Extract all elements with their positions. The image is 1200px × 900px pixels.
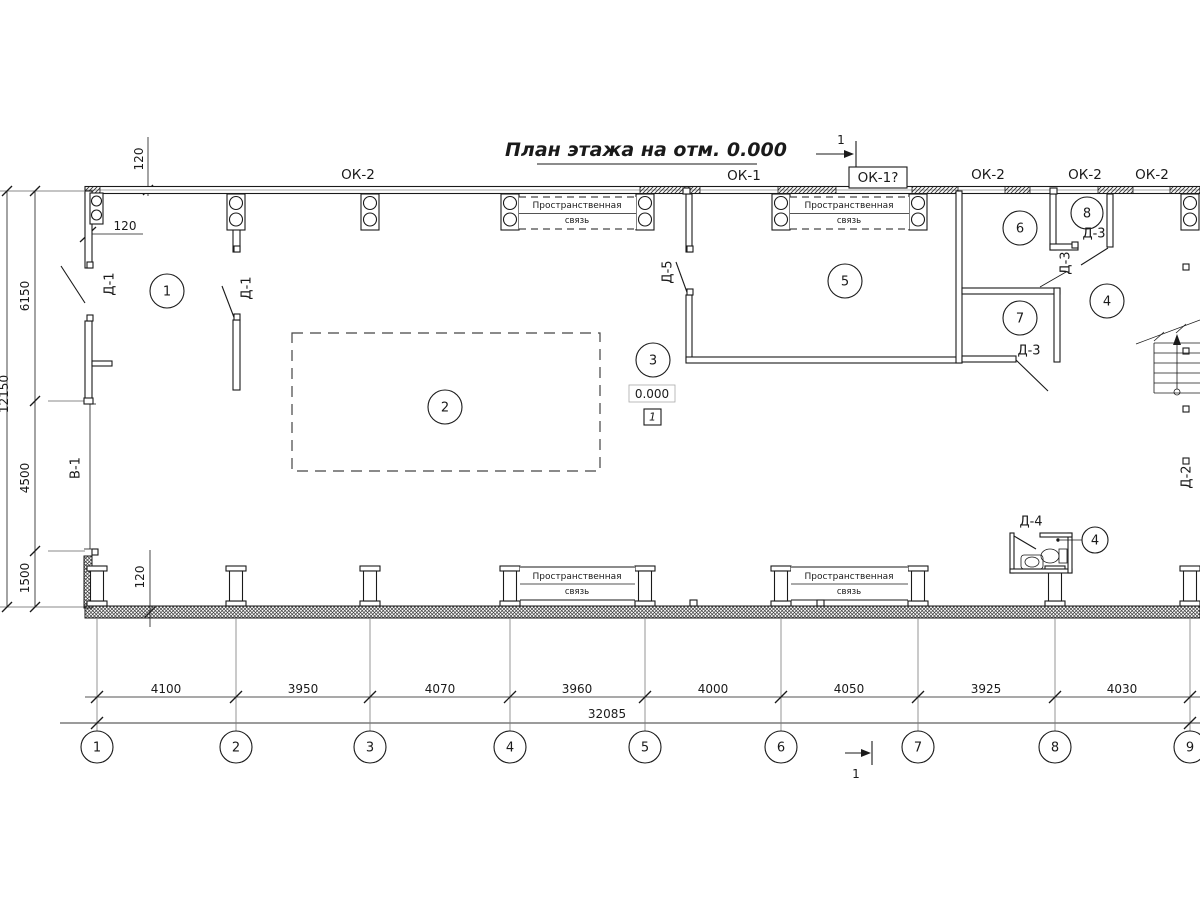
door-label: Д-4 bbox=[1019, 515, 1042, 530]
door-leaf bbox=[222, 286, 235, 320]
door-label: Д-2 bbox=[1180, 465, 1195, 488]
dim-1500: 1500 bbox=[18, 563, 32, 594]
svg-text:3: 3 bbox=[366, 741, 374, 756]
wall-pier bbox=[1005, 187, 1030, 194]
svg-text:3: 3 bbox=[649, 354, 657, 369]
left-wall bbox=[84, 191, 112, 608]
brace-label: Пространственная bbox=[804, 201, 893, 211]
column bbox=[227, 194, 245, 230]
column bbox=[909, 194, 927, 230]
door-jamb bbox=[1050, 188, 1057, 194]
sink-bowl-icon bbox=[1025, 557, 1039, 567]
column bbox=[87, 566, 107, 606]
drawing-title: План этажа на отм. 0.000 bbox=[505, 139, 787, 164]
wall-return bbox=[92, 361, 112, 366]
section-arrow-icon bbox=[844, 150, 854, 158]
door-label: Д-1 bbox=[240, 276, 255, 299]
top-wall bbox=[85, 187, 1200, 194]
door-jamb bbox=[687, 246, 693, 252]
section-mark-bottom: 1 bbox=[845, 741, 872, 781]
svg-text:4: 4 bbox=[1091, 534, 1099, 549]
svg-text:8: 8 bbox=[1051, 741, 1059, 756]
dim-6150: 6150 bbox=[18, 281, 32, 312]
dim-12150: 12150 bbox=[0, 375, 11, 413]
floor-plan-canvas: План этажа на отм. 0.000 1 1 6150 4500 1… bbox=[0, 0, 1200, 900]
door-label: Д-3 bbox=[1082, 227, 1105, 242]
axis-bubbles: 1 2 3 4 5 6 7 8 9 bbox=[81, 731, 1200, 763]
svg-text:7: 7 bbox=[1016, 312, 1024, 327]
dim-span: 4030 bbox=[1107, 682, 1138, 696]
door-label: Д-1 bbox=[103, 272, 118, 295]
wall-pier bbox=[1170, 187, 1200, 194]
brace-top-2: Пространственная связь bbox=[790, 197, 909, 229]
door-leaf bbox=[61, 266, 85, 303]
door-label: Д-3 bbox=[1017, 344, 1040, 359]
door-leaf bbox=[676, 262, 688, 295]
brace-label: связь bbox=[837, 587, 861, 597]
door-jamb bbox=[817, 600, 824, 606]
dim-total: 32085 bbox=[588, 707, 626, 721]
dim-120-bottom: 120 bbox=[133, 566, 147, 589]
dim-span: 4050 bbox=[834, 682, 865, 696]
dim-span: 3960 bbox=[562, 682, 593, 696]
window-label: ОК-2 bbox=[1135, 167, 1169, 183]
page-title: План этажа на отм. 0.000 bbox=[505, 139, 787, 161]
window-label: ОК-1 bbox=[727, 168, 761, 184]
dim-120-top: 120 bbox=[132, 148, 146, 171]
svg-text:5: 5 bbox=[841, 275, 849, 290]
room-bubbles: 1 2 3 5 6 7 8 4 4 bbox=[150, 197, 1124, 553]
svg-text:7: 7 bbox=[914, 741, 922, 756]
brace-label: связь bbox=[565, 216, 589, 226]
window-label: ОК-2 bbox=[1068, 167, 1102, 183]
svg-text:6: 6 bbox=[777, 741, 785, 756]
door-leaf bbox=[1014, 536, 1036, 549]
column bbox=[771, 566, 791, 606]
door-jamb bbox=[87, 315, 93, 321]
gate-label: В-1 bbox=[69, 457, 84, 479]
column bbox=[635, 566, 655, 606]
section-mark-top: 1 bbox=[816, 133, 856, 167]
section-arrow-icon bbox=[861, 749, 871, 757]
section-number: 1 bbox=[837, 133, 845, 147]
dim-4500: 4500 bbox=[18, 463, 32, 494]
column bbox=[90, 193, 103, 224]
svg-text:4: 4 bbox=[506, 741, 514, 756]
dim-span: 3925 bbox=[971, 682, 1002, 696]
door-jamb bbox=[1183, 458, 1189, 464]
wall-pier bbox=[912, 187, 958, 194]
door-label: Д-5 bbox=[661, 260, 676, 283]
brace-top-1: Пространственная связь bbox=[519, 197, 636, 229]
door-leaf bbox=[1081, 248, 1108, 265]
level-mark: 0.000 1 bbox=[629, 385, 675, 425]
door-jamb bbox=[234, 314, 240, 320]
brace-bottom-1: Пространственная связь bbox=[520, 566, 635, 600]
section-number: 1 bbox=[852, 767, 860, 781]
door-jamb bbox=[234, 246, 240, 252]
brace-label: Пространственная bbox=[804, 572, 893, 582]
window-label: ОК-2 bbox=[971, 167, 1005, 183]
level-flag: 1 bbox=[649, 411, 656, 424]
door-jamb bbox=[92, 549, 98, 555]
bottom-wall bbox=[85, 606, 1200, 618]
brace-label: связь bbox=[837, 216, 861, 226]
svg-text:2: 2 bbox=[441, 401, 449, 416]
dim-120-wall: 120 bbox=[114, 219, 137, 233]
stair-arrow-head-icon bbox=[1173, 334, 1181, 345]
column bbox=[1181, 194, 1199, 230]
column bbox=[772, 194, 790, 230]
dimensions-bottom: 4100 3950 4070 3960 4000 4050 3925 4030 … bbox=[60, 619, 1200, 733]
dimensions-left: 6150 4500 1500 12150 120 120 120 bbox=[0, 137, 155, 627]
door-label: Д-3 bbox=[1059, 251, 1074, 274]
floor-plan-sheet: План этажа на отм. 0.000 1 1 6150 4500 1… bbox=[0, 0, 1200, 900]
stair-break-line bbox=[1136, 320, 1200, 344]
dim-span: 3950 bbox=[288, 682, 319, 696]
door-jamb bbox=[683, 188, 690, 194]
level-value: 0.000 bbox=[635, 387, 669, 401]
column bbox=[360, 566, 380, 606]
column bbox=[501, 194, 519, 230]
dim-span: 4070 bbox=[425, 682, 456, 696]
dim-span: 4000 bbox=[698, 682, 729, 696]
window-label: ОК-2 bbox=[341, 167, 375, 183]
svg-text:2: 2 bbox=[232, 741, 240, 756]
door-jamb bbox=[687, 289, 693, 295]
stairs bbox=[1136, 320, 1200, 395]
svg-text:9: 9 bbox=[1186, 741, 1194, 756]
door-jamb bbox=[87, 262, 93, 268]
gate-b1: В-1 bbox=[69, 404, 97, 549]
door-leaf bbox=[1016, 360, 1048, 391]
stair-arrow-start bbox=[1174, 389, 1180, 395]
doors bbox=[61, 188, 1189, 606]
svg-text:1: 1 bbox=[93, 741, 101, 756]
column bbox=[1180, 566, 1200, 606]
svg-text:5: 5 bbox=[641, 741, 649, 756]
svg-text:4: 4 bbox=[1103, 295, 1111, 310]
wall-pier bbox=[778, 187, 836, 194]
brace-label: Пространственная bbox=[532, 201, 621, 211]
svg-text:6: 6 bbox=[1016, 222, 1024, 237]
column bbox=[361, 194, 379, 230]
toilet-icon bbox=[1041, 549, 1059, 563]
door-jamb bbox=[1183, 264, 1189, 270]
column bbox=[500, 566, 520, 606]
wall-pier bbox=[1098, 187, 1133, 194]
brace-label: связь bbox=[565, 587, 589, 597]
svg-text:1: 1 bbox=[163, 285, 171, 300]
column bbox=[636, 194, 654, 230]
window-label: ОК-1? bbox=[858, 170, 899, 186]
leader-dot bbox=[1056, 538, 1059, 541]
brace-label: Пространственная bbox=[532, 572, 621, 582]
column bbox=[908, 566, 928, 606]
brace-bottom-2: Пространственная связь bbox=[791, 566, 908, 600]
wall-pier bbox=[640, 187, 700, 194]
svg-text:8: 8 bbox=[1083, 207, 1091, 222]
toilet-tank-icon bbox=[1059, 549, 1067, 563]
column bbox=[226, 566, 246, 606]
dim-span: 4100 bbox=[151, 682, 182, 696]
door-jamb bbox=[1072, 242, 1078, 248]
door-jamb bbox=[1183, 406, 1189, 412]
door-jamb bbox=[690, 600, 697, 606]
